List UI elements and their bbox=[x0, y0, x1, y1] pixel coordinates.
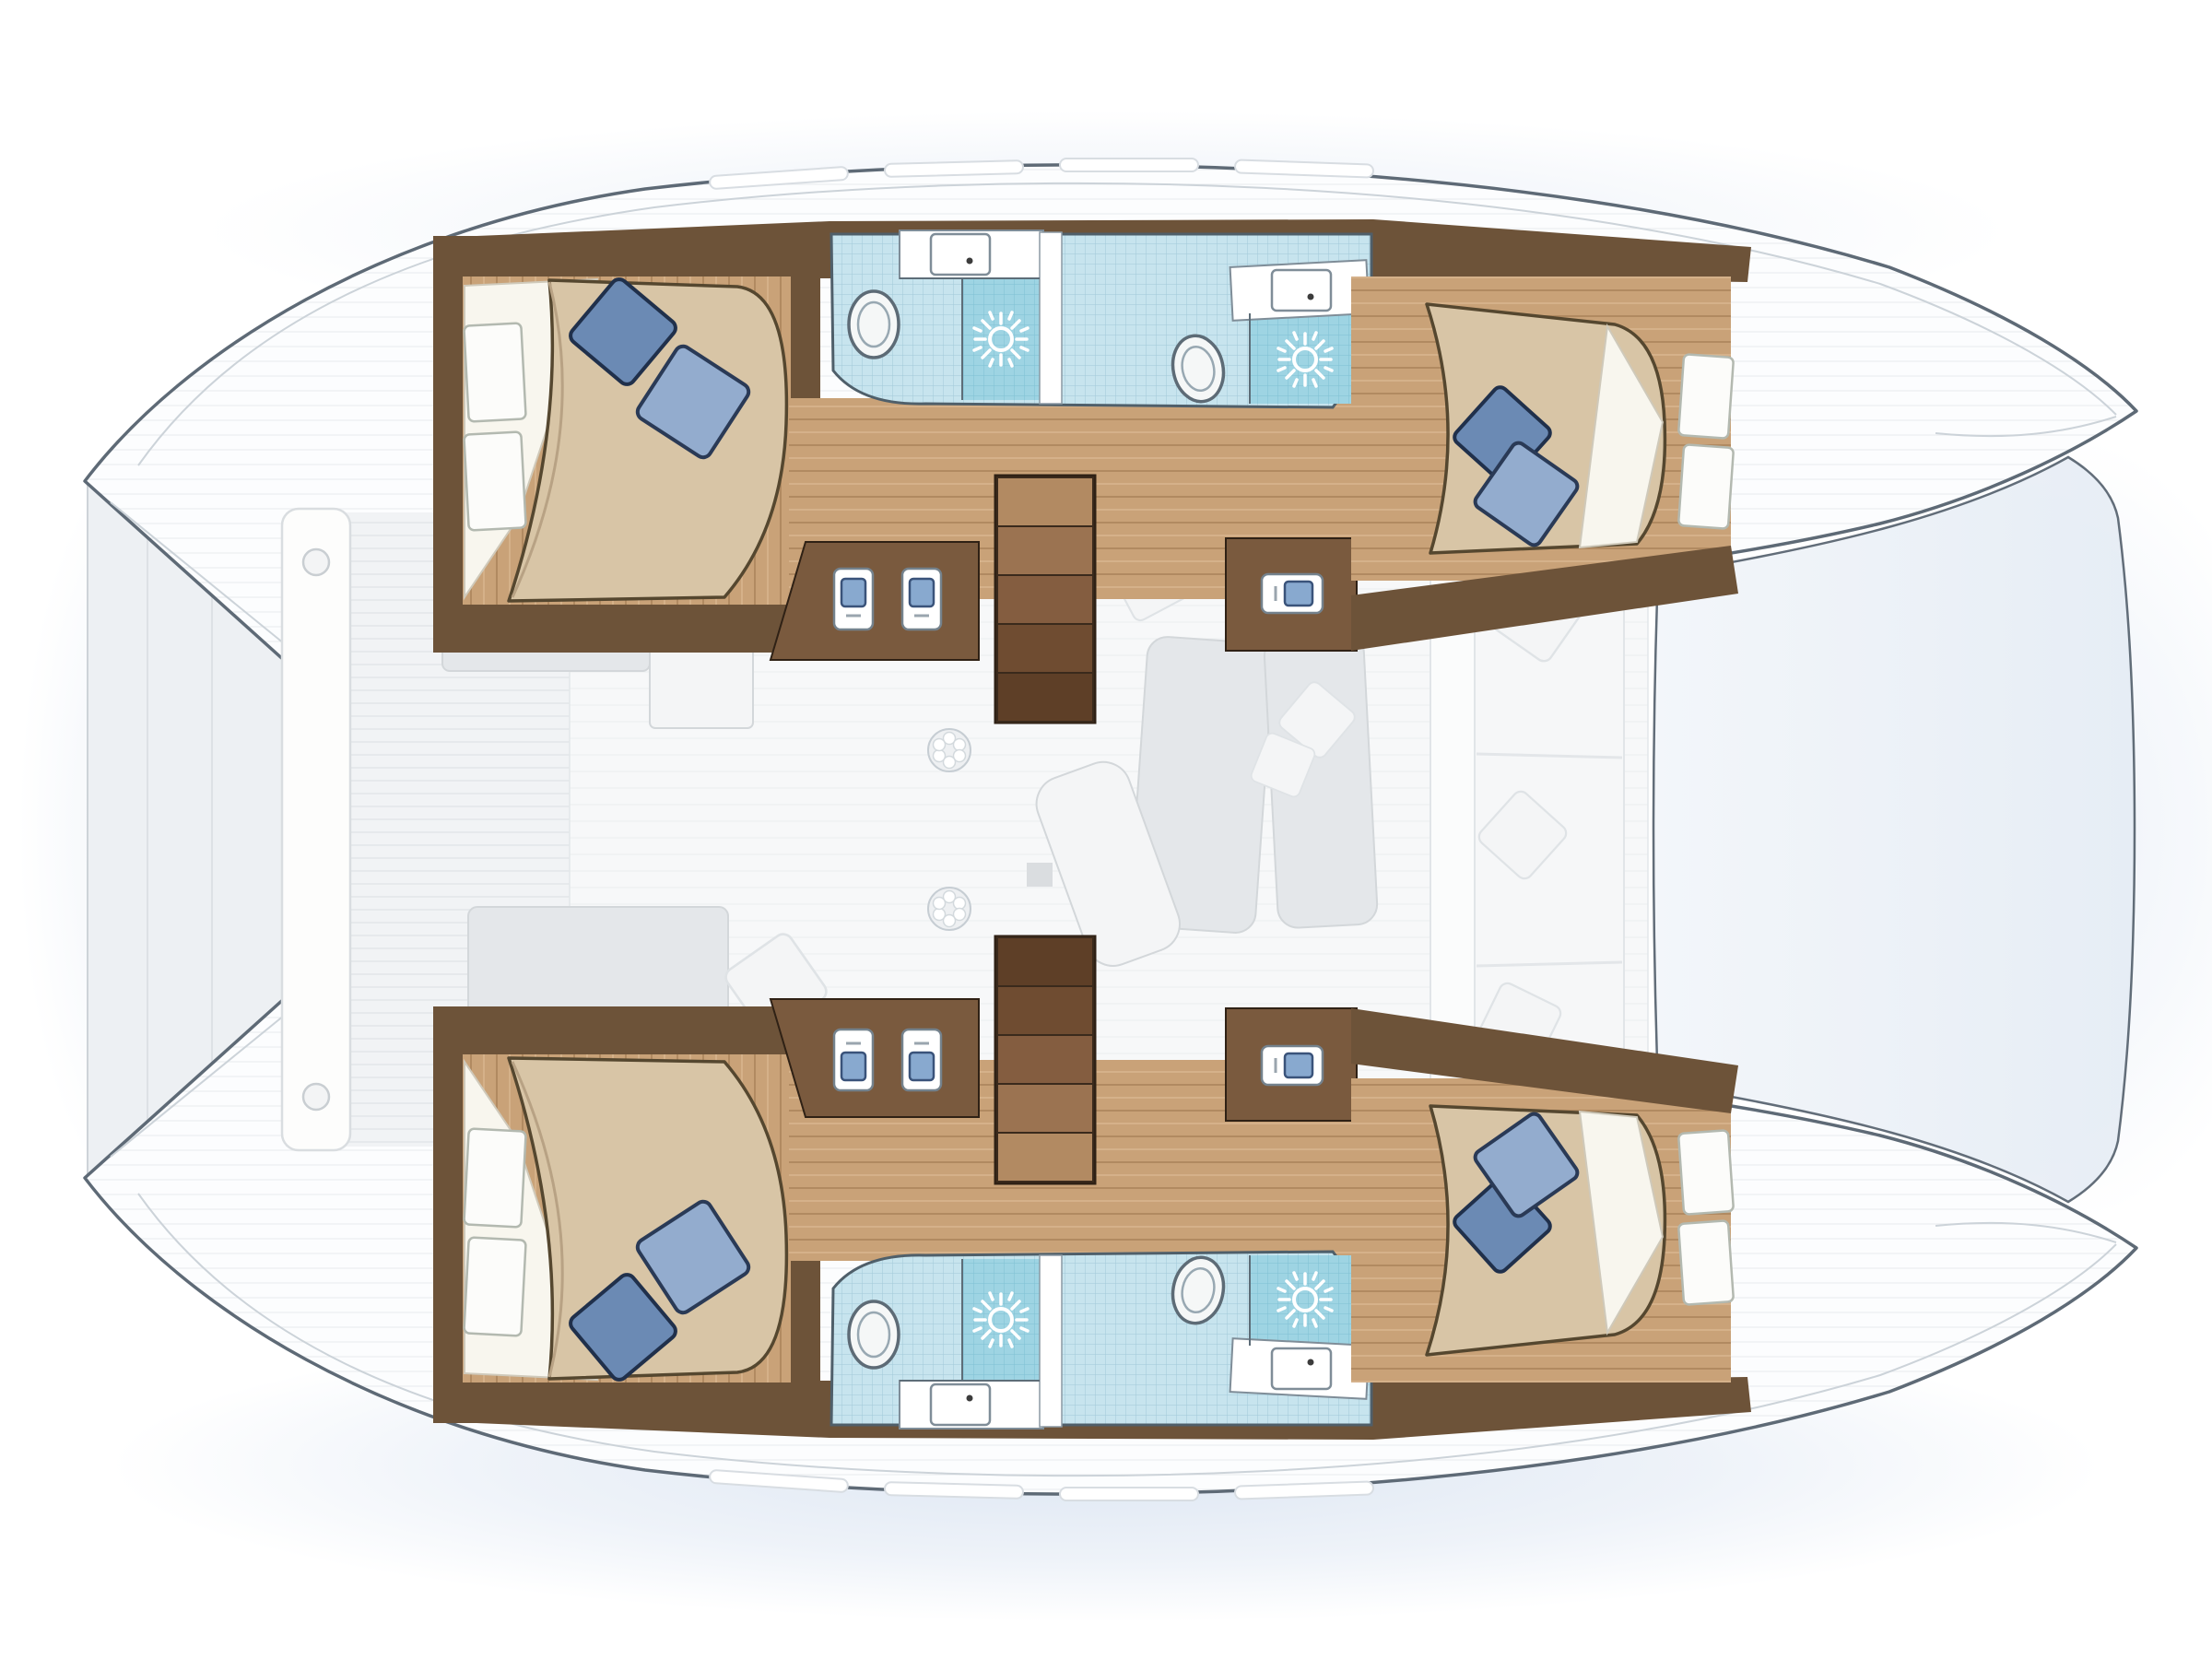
aft-bench bbox=[282, 509, 350, 1150]
table-base bbox=[1027, 863, 1053, 887]
bench-circle bbox=[303, 549, 329, 575]
catamaran-floorplan-illustration bbox=[0, 0, 2212, 1659]
floorplan-canvas bbox=[0, 0, 2212, 1659]
deck-hatch-icon bbox=[928, 729, 971, 771]
deck-hatch-icon bbox=[928, 888, 971, 930]
bench-circle bbox=[303, 1084, 329, 1110]
